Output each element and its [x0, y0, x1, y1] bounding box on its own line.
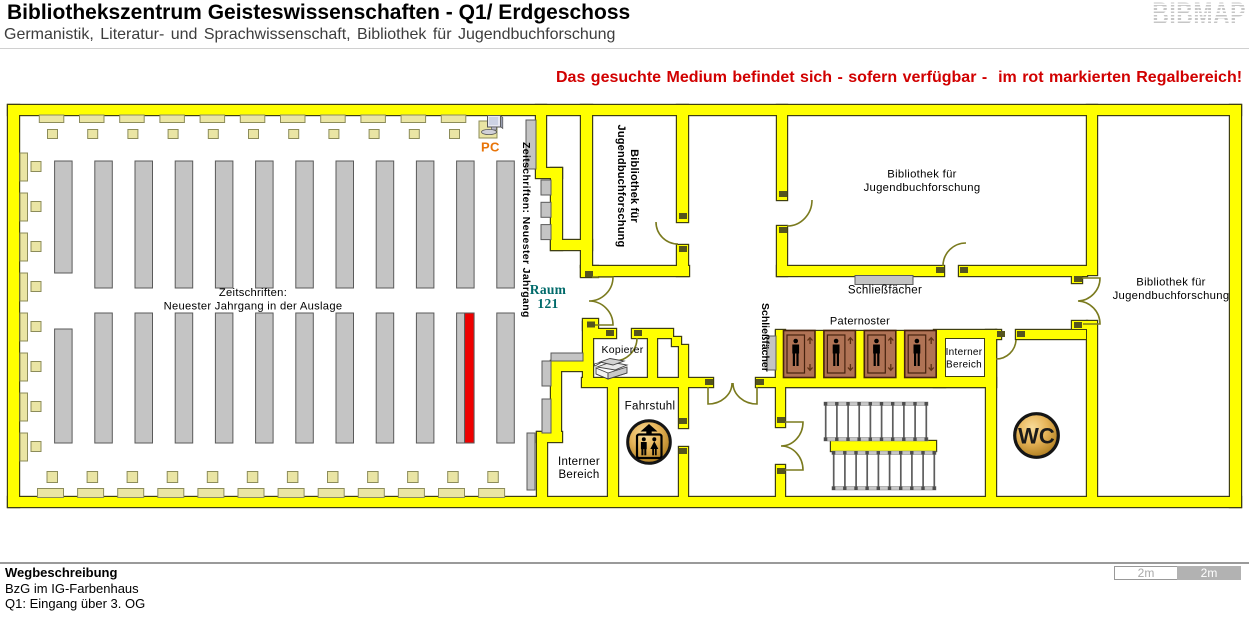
svg-text:Bereich: Bereich: [946, 360, 982, 371]
svg-text:Interner: Interner: [946, 347, 983, 358]
svg-text:Jugendbuchforschung: Jugendbuchforschung: [864, 182, 981, 194]
svg-text:Paternoster: Paternoster: [830, 316, 890, 328]
svg-text:Raum: Raum: [530, 282, 567, 297]
svg-text:WC: WC: [1018, 424, 1055, 449]
svg-text:Jugendbuchforschung: Jugendbuchforschung: [615, 125, 627, 248]
svg-text:121: 121: [537, 296, 558, 311]
svg-text:Zeitschriften: Neuester Jahrga: Zeitschriften: Neuester Jahrgang: [520, 142, 532, 318]
svg-text:PC: PC: [481, 140, 500, 155]
svg-text:Neuester Jahrgang in der Ausla: Neuester Jahrgang in der Auslage: [164, 301, 343, 313]
svg-text:Jugendbuchforschung: Jugendbuchforschung: [1113, 290, 1230, 302]
svg-text:Schließfächer: Schließfächer: [848, 285, 922, 297]
svg-text:Bibliothek für: Bibliothek für: [628, 149, 640, 223]
svg-text:Fahrstuhl: Fahrstuhl: [625, 401, 676, 413]
svg-text:Zeitschriften:: Zeitschriften:: [219, 287, 287, 299]
svg-text:Schließfächer: Schließfächer: [759, 303, 771, 372]
svg-text:Bibliothek für: Bibliothek für: [887, 169, 957, 181]
svg-text:Kopierer: Kopierer: [601, 344, 643, 356]
svg-text:Interner: Interner: [558, 456, 600, 468]
svg-text:Bereich: Bereich: [558, 469, 599, 481]
svg-text:Bibliothek für: Bibliothek für: [1136, 277, 1206, 289]
